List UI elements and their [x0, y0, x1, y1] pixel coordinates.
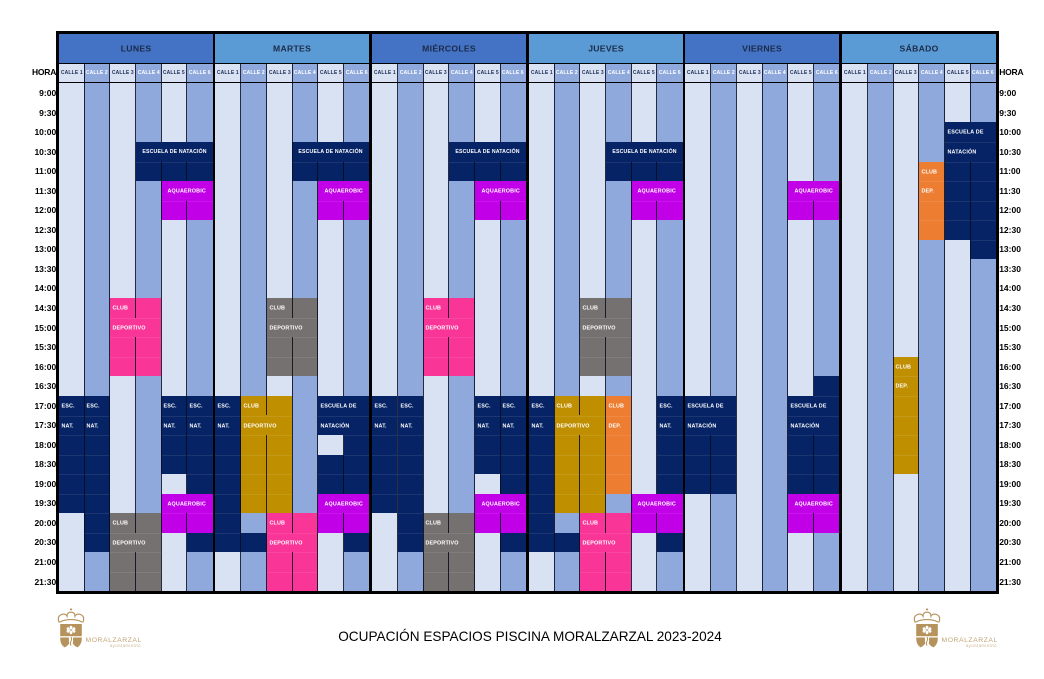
svg-text:ayuntamiento: ayuntamiento [966, 643, 997, 648]
svg-text:ayuntamiento: ayuntamiento [110, 643, 141, 648]
